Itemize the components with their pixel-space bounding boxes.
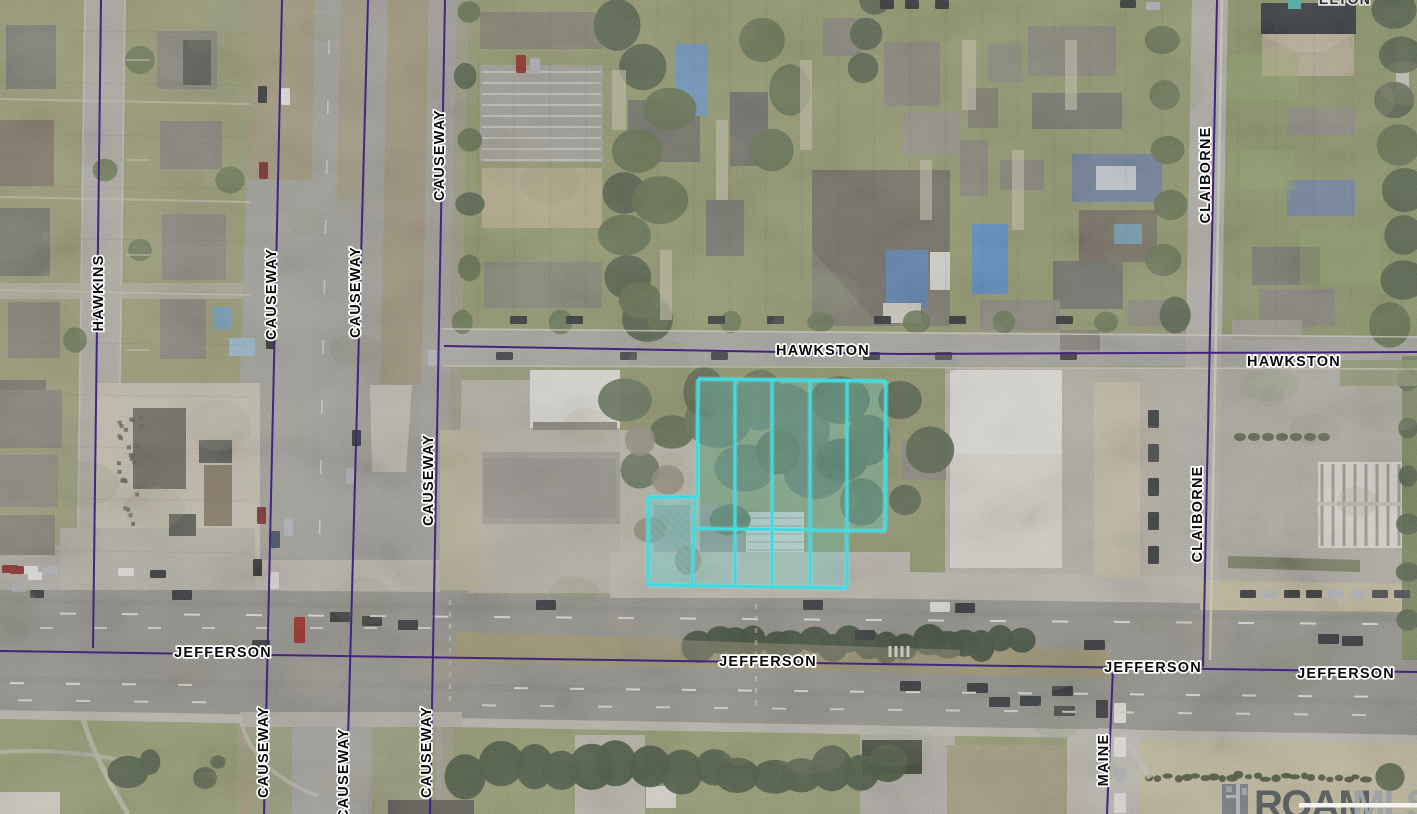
svg-text:MAINE: MAINE — [1096, 734, 1112, 787]
svg-text:CAUSEWAY: CAUSEWAY — [336, 728, 352, 814]
svg-text:CAUSEWAY: CAUSEWAY — [264, 248, 280, 340]
svg-text:CAUSEWAY: CAUSEWAY — [256, 706, 272, 798]
svg-text:HAWKSTON: HAWKSTON — [1247, 354, 1341, 370]
svg-text:JEFFERSON: JEFFERSON — [174, 645, 272, 661]
svg-text:CAUSEWAY: CAUSEWAY — [348, 246, 364, 338]
svg-text:JEFFERSON: JEFFERSON — [719, 654, 817, 670]
svg-text:CLAIBORNE: CLAIBORNE — [1190, 466, 1206, 563]
svg-text:CAUSEWAY: CAUSEWAY — [419, 706, 435, 798]
svg-text:HAWKSTON: HAWKSTON — [776, 343, 870, 359]
svg-text:CAUSEWAY: CAUSEWAY — [432, 109, 448, 201]
svg-text:CAUSEWAY: CAUSEWAY — [421, 434, 437, 526]
svg-text:CLAIBORNE: CLAIBORNE — [1198, 127, 1214, 224]
svg-text:JEFFERSON: JEFFERSON — [1297, 666, 1395, 682]
svg-text:HAWKINS: HAWKINS — [91, 255, 107, 332]
svg-text:JEFFERSON: JEFFERSON — [1104, 660, 1202, 676]
svg-text:MLS: MLS — [1352, 783, 1417, 814]
